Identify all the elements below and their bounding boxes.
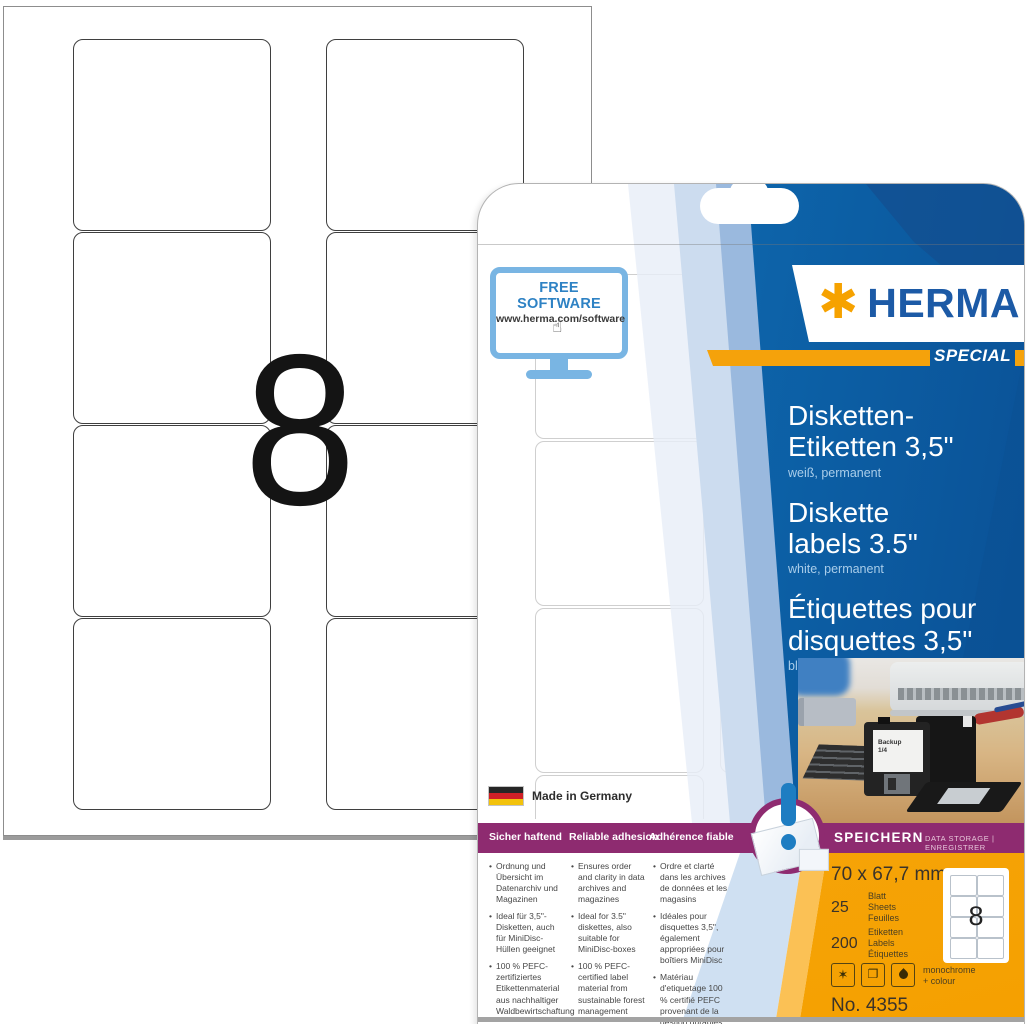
feature-column-de: Ordnung und Übersicht im Datenarchiv und… bbox=[489, 861, 565, 1024]
storage-label-intl: DATA STORAGE | ENREGISTRER bbox=[925, 834, 1024, 852]
package-card: FREE SOFTWARE www.herma.com/software ☝ ✱… bbox=[477, 183, 1025, 1024]
herma-asterisk-icon: ✱ bbox=[818, 279, 858, 327]
mini-sheet-count: 8 bbox=[943, 901, 1009, 932]
card-inner-edge bbox=[478, 244, 1024, 245]
photo-laptop-keys bbox=[898, 688, 1024, 700]
product-image: 8 FREE SOFTWARE www.herma.com/softwar bbox=[0, 0, 1027, 1024]
subtitle-en: white, permanent bbox=[788, 562, 1018, 576]
card-bottom-shadow bbox=[478, 1017, 1024, 1022]
title-en: Diskettelabels 3.5" bbox=[788, 497, 1018, 560]
free-software-title: FREE SOFTWARE bbox=[496, 280, 622, 312]
title-de: Disketten-Etiketten 3,5" bbox=[788, 400, 1018, 463]
sheet-label-cell bbox=[73, 618, 271, 810]
laser-printer-icon: ✶ bbox=[831, 963, 855, 987]
special-label: SPECIAL bbox=[934, 346, 1011, 366]
printing-compatibility: monochrome + colour bbox=[923, 965, 976, 987]
monitor-stand-base bbox=[526, 370, 592, 379]
feature-columns: Ordnung und Übersicht im Datenarchiv und… bbox=[489, 861, 735, 1024]
sheet-label-cell bbox=[73, 39, 271, 231]
german-flag-icon bbox=[488, 786, 524, 806]
feature-column-en: Ensures order and clarity in data archiv… bbox=[571, 861, 647, 1024]
free-software-monitor: FREE SOFTWARE www.herma.com/software ☝ bbox=[490, 267, 628, 359]
hand-cursor-icon: ☝ bbox=[552, 317, 562, 337]
feature-header-fr: Adhérence fiable bbox=[649, 831, 734, 843]
made-in-label: Made in Germany bbox=[532, 789, 632, 803]
storage-label-de: SPEICHERN bbox=[834, 830, 924, 845]
application-photo: Backup 1/4 bbox=[798, 658, 1024, 823]
copier-icon: ❐ bbox=[861, 963, 885, 987]
label-count: 200 bbox=[831, 935, 858, 953]
photo-blue-object bbox=[798, 658, 850, 696]
exclamation-icon bbox=[781, 783, 796, 826]
exclamation-dot bbox=[781, 834, 796, 850]
product-titles: Disketten-Etiketten 3,5" weiß, permanent… bbox=[788, 400, 1018, 690]
herma-wordmark: HERMA bbox=[867, 280, 1020, 327]
feature-header-en: Reliable adhesion bbox=[569, 831, 658, 843]
item-number: No. 4355 bbox=[831, 995, 908, 1017]
photo-diskette-flat bbox=[905, 782, 1022, 812]
label-size: 70 x 67,7 mm bbox=[831, 864, 946, 886]
herma-logo: ✱ HERMA bbox=[818, 272, 1020, 334]
inkjet-printer-icon bbox=[891, 963, 915, 987]
special-bar-end bbox=[1015, 350, 1024, 366]
feature-column-fr: Ordre et clarté dans les archives de don… bbox=[653, 861, 729, 1024]
hang-hole bbox=[700, 188, 799, 224]
title-fr: Étiquettes pourdisquettes 3,5" bbox=[788, 593, 1018, 656]
sheet-count: 25 bbox=[831, 899, 849, 917]
label-units: Etiketten Labels Étiquettes bbox=[868, 927, 908, 959]
photo-notebook bbox=[798, 698, 856, 726]
mini-sheet-diagram: 8 bbox=[943, 868, 1009, 963]
sheet-units: Blatt Sheets Feuilles bbox=[868, 891, 899, 923]
feature-header-de: Sicher haftend bbox=[489, 831, 562, 843]
photo-disk-label: Backup 1/4 bbox=[871, 730, 923, 772]
photo-diskette-front: Backup 1/4 bbox=[864, 722, 930, 796]
labels-per-sheet-count: 8 bbox=[240, 337, 360, 522]
subtitle-de: weiß, permanent bbox=[788, 466, 1018, 480]
